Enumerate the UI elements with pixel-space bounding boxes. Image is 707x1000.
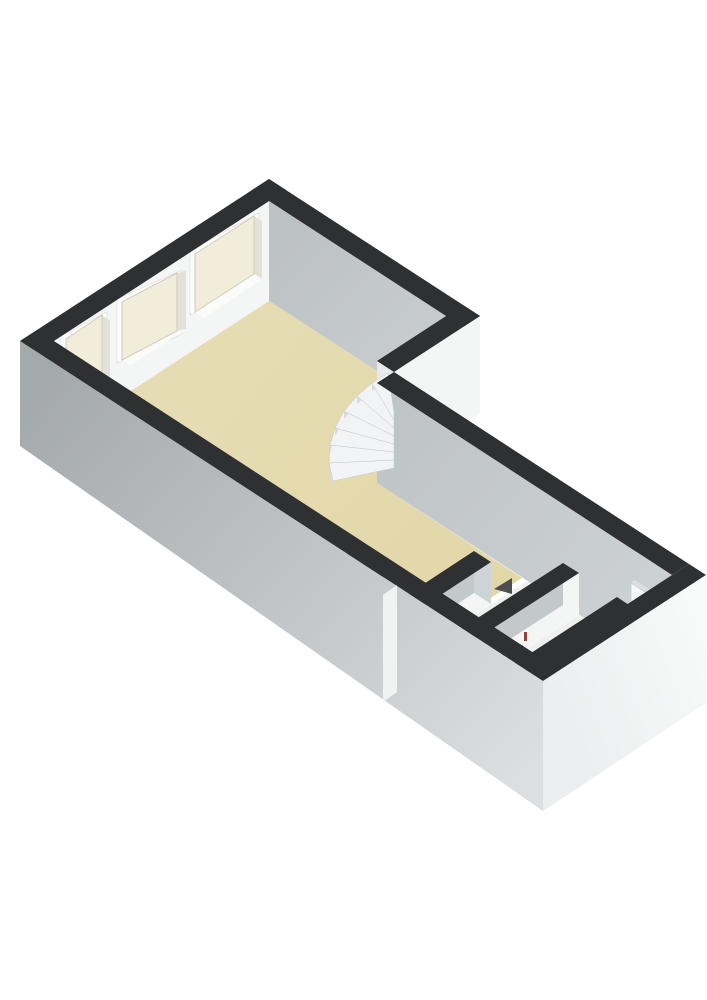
window-reveal [177,271,186,331]
window-reveal [254,216,262,279]
sw-wall-jog-face [383,585,397,702]
floor-plan-3d-render [0,0,707,1000]
window-reveal [102,315,110,379]
floor-plan-page [0,0,707,1000]
radiator-valve [524,632,527,641]
